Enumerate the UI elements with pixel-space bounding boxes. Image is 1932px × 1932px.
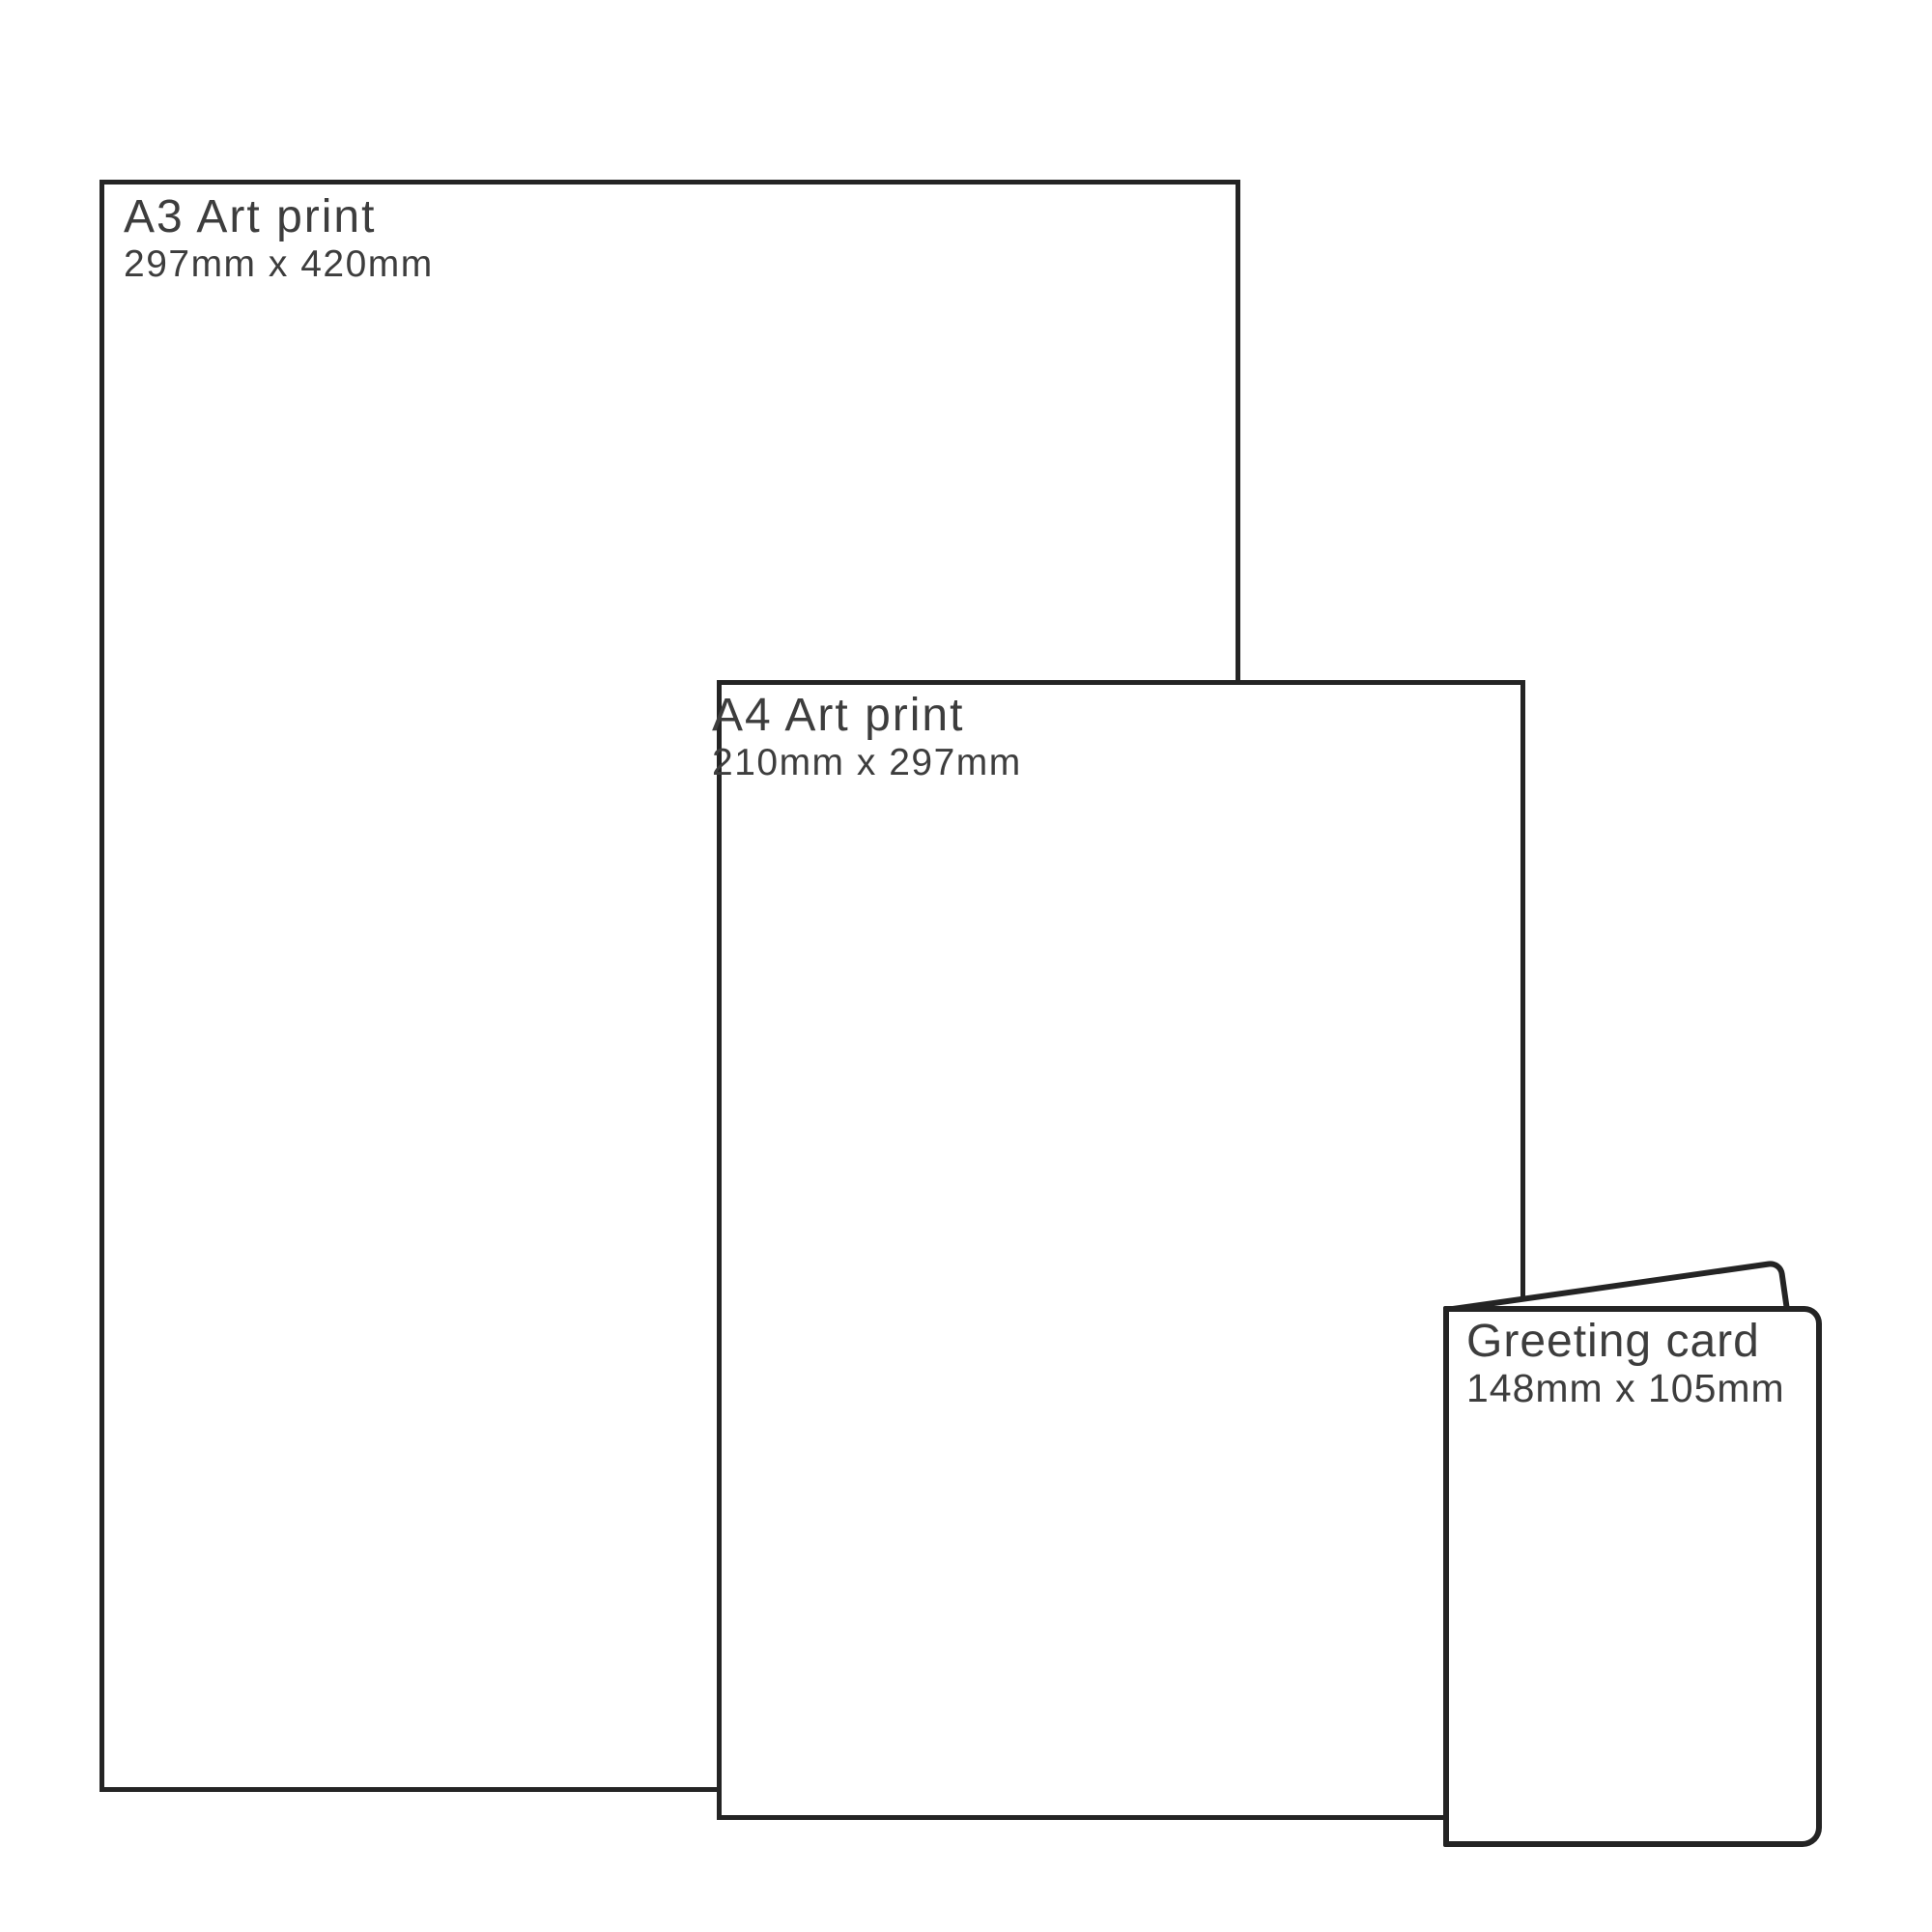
size-comparison-diagram: A3 Art print 297mm x 420mm A4 Art print … (0, 0, 1932, 1932)
greeting-card-title: Greeting card (1466, 1316, 1785, 1368)
a3-dimensions: 297mm x 420mm (124, 243, 434, 286)
a3-size-label: A3 Art print 297mm x 420mm (124, 191, 434, 286)
a4-dimensions: 210mm x 297mm (712, 742, 1022, 784)
greeting-card-dimensions: 148mm x 105mm (1466, 1368, 1785, 1408)
a3-title: A3 Art print (124, 191, 434, 243)
greeting-card-size-label: Greeting card 148mm x 105mm (1466, 1316, 1785, 1408)
a4-title: A4 Art print (712, 690, 1022, 742)
a4-sheet-outline (717, 680, 1525, 1820)
a4-size-label: A4 Art print 210mm x 297mm (712, 690, 1022, 784)
